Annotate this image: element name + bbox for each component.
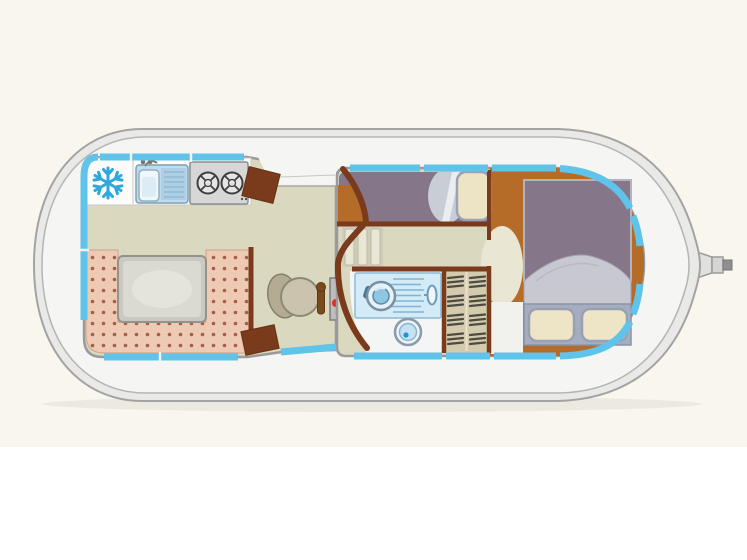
bed-pillow-left [529,309,574,341]
window-helm-bottom [281,347,336,352]
shower-head-icon [428,286,437,305]
galley-sink [136,160,188,203]
sink-basin-inner [142,177,156,197]
helm-seat [281,278,319,316]
two-burner-stove-icon [190,162,248,204]
toilet-drain [403,332,408,337]
sink-drainer [161,168,186,200]
table-highlight [132,270,192,308]
toilet [395,319,421,345]
rudder-tip [723,260,732,270]
berth-pillow [457,172,490,220]
saloon-cabin [84,157,358,357]
rudder-fitting [712,257,723,273]
boat-floor-plan-canvas [0,0,747,560]
double-bed [524,180,631,345]
boat-floor-plan [0,0,747,560]
wardrobe [444,268,489,353]
bedroom-entry-step [491,302,523,354]
toilet-bowl [400,324,417,341]
background-white [0,447,747,560]
tiller-knob [317,283,326,292]
